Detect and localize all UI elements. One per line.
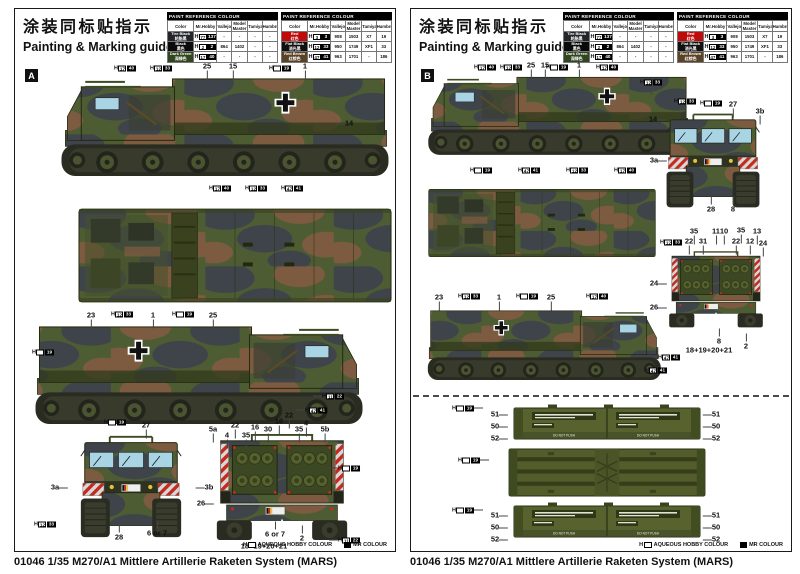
part-callout: 22 (685, 237, 693, 246)
table-row: Tire Black轮胎黑 H77137 - - - - (564, 32, 674, 42)
vehicle-rear-view (665, 249, 767, 329)
paint-chip-callout: H4741 (518, 165, 540, 174)
part-callout: 52 (491, 535, 499, 544)
diagram-canvas-b: B H AQUEOUS HOBBY COLOUR (411, 57, 791, 551)
kit-caption: 01046 1/35 M270/A1 Mittlere Artillerie R… (410, 556, 733, 568)
paint-chip: H1233 (566, 168, 588, 174)
part-callout: 11 (712, 227, 720, 236)
paint-chip: H1233 (704, 44, 726, 50)
part-callout: 4 (225, 431, 229, 440)
paint-chip: H4741 (658, 355, 680, 361)
colour-legend: H AQUEOUS HOBBY COLOUR MR COLOUR (639, 542, 783, 548)
color-swatch: Flat Black消光黑 (282, 42, 308, 52)
part-callout: 1 (151, 311, 155, 320)
paint-chip-callout: H4741 (658, 352, 680, 361)
color-swatch: Flat Black消光黑 (678, 42, 704, 52)
part-callout: 25 (547, 293, 555, 302)
paint-chip: H1740 (474, 65, 496, 71)
part-callout: 30 (264, 425, 272, 434)
part-callout: 51 (491, 410, 499, 419)
table-row: Flat Black消光黑 H1233 950 1749 XF1 33 (282, 42, 392, 52)
paint-chip-callout: H1233 (150, 63, 172, 72)
vehicle-side-view-left (55, 71, 393, 180)
paint-chip-callout: H19 (458, 455, 480, 464)
paint-chip: H19 (700, 101, 722, 107)
paint-chip: H19 (32, 350, 54, 356)
table-row: Black黑色 H22 864 1402 - - (168, 42, 278, 52)
paint-chip: H77137 (194, 34, 216, 40)
paint-chip-callout: H19 (546, 62, 568, 71)
paint-chip: H1233 (150, 66, 172, 72)
table-row: Black黑色 H22 864 1402 - - (564, 42, 674, 52)
title-english: Painting & Marking guide (23, 40, 173, 54)
title-chinese: 涂装同标贴指示 (419, 13, 569, 37)
paint-chip-callout: H1740 (614, 165, 636, 174)
paint-chip: H77137 (590, 34, 612, 40)
paint-chip: H1233 (640, 80, 662, 86)
paint-table-title: PAINT REFERENCE COLOUR (677, 12, 788, 20)
paint-chip-callout: H1122 (322, 391, 344, 400)
part-callout: 8 (717, 337, 721, 346)
paint-chip-callout: H1233 (566, 165, 588, 174)
part-callout: 24 (650, 279, 658, 288)
part-callout: 27 (729, 100, 737, 109)
title-chinese: 涂装同标贴指示 (23, 13, 173, 37)
table-row: Red红色 H33 908 1503 X7 19 (678, 32, 788, 42)
part-callout: 4 (304, 419, 308, 428)
paint-table-1: PAINT REFERENCE COLOUR ColorMr.Hobby Val… (563, 12, 674, 63)
paint-chip-callout: H1233 (674, 96, 696, 105)
vehicle-top-view (77, 203, 393, 308)
part-callout: 26 (197, 499, 205, 508)
paint-chip-callout: H1740 (114, 63, 136, 72)
part-callout: 50 (712, 523, 720, 532)
part-callout: 18+19+20+21 (686, 346, 733, 355)
part-callout: 24 (759, 239, 767, 248)
part-callout: 51 (491, 511, 499, 520)
paint-table-1: PAINT REFERENCE COLOUR ColorMr.Hobby Val… (167, 12, 278, 63)
rocket-pod-side-view (511, 403, 703, 443)
paint-chip: H1740 (209, 186, 231, 192)
paint-chip-callout: H1233 (458, 291, 480, 300)
vehicle-rear-view (211, 431, 353, 542)
paint-table-2: PAINT REFERENCE COLOUR ColorMr.Hobby Val… (281, 12, 392, 63)
paint-chip: H4741 (281, 186, 303, 192)
color-swatch: Tire Black轮胎黑 (168, 32, 194, 42)
table-row: Flat Black消光黑 H1233 950 1749 XF1 33 (678, 42, 788, 52)
paint-chip-callout: H19 (470, 165, 492, 174)
paint-chip-callout: H4741 (281, 183, 303, 192)
paint-chip-callout: H1740 (596, 62, 618, 71)
paint-chip: H19 (452, 406, 474, 412)
paint-chip-callout: H1233 (245, 183, 267, 192)
part-callout: 16 (275, 417, 283, 426)
paint-chip: H19 (546, 65, 568, 71)
part-callout: 12 (746, 237, 754, 246)
paint-chip: H1740 (114, 66, 136, 72)
paint-chip-callout: H19 (338, 463, 360, 472)
instruction-panel-a: 涂装同标贴指示 Painting & Marking guide PAINT R… (14, 8, 396, 552)
part-callout: 16 (251, 423, 259, 432)
paint-chip: H33 (704, 34, 726, 40)
paint-chip: H1233 (308, 44, 330, 50)
part-callout: 13 (753, 227, 761, 236)
part-callout: 14 (345, 119, 353, 128)
part-callout: 3a (51, 483, 59, 492)
paint-table-title: PAINT REFERENCE COLOUR (563, 12, 674, 20)
paint-chip: H19 (338, 466, 360, 472)
part-callout: 25 (209, 311, 217, 320)
paint-chip-callout: H1233 (640, 77, 662, 86)
paint-chip-callout: H1233 (111, 309, 133, 318)
part-callout: 50 (491, 523, 499, 532)
part-callout: 8 (731, 205, 735, 214)
paint-chip: H1233 (500, 65, 522, 71)
paint-chip: H1233 (111, 312, 133, 318)
paint-chip: H1233 (458, 294, 480, 300)
part-callout: 1 (577, 61, 581, 70)
part-callout: 14 (649, 115, 657, 124)
paint-chip: H19 (470, 168, 492, 174)
paint-reference-tables: PAINT REFERENCE COLOUR ColorMr.Hobby Val… (167, 12, 392, 63)
vehicle-front-view (77, 431, 185, 541)
table-row: Tire Black轮胎黑 H77137 - - - - (168, 32, 278, 42)
paint-chip: H4741 (645, 368, 667, 374)
paint-chip: H4741 (305, 408, 327, 414)
aqueous-hobby-colour-icon: H (243, 542, 255, 548)
paint-chip: H1233 (245, 186, 267, 192)
rocket-pod-top-view (507, 447, 707, 498)
color-swatch: Tire Black轮胎黑 (564, 32, 590, 42)
color-swatch: Red红色 (678, 32, 704, 42)
mr-colour-icon (344, 542, 351, 548)
diagram-canvas-a: A H AQUEOUS HOBBY COLOUR MR COLOUR 25151… (15, 57, 395, 551)
paint-chip: H19 (172, 312, 194, 318)
part-callout: 26 (650, 303, 658, 312)
colour-legend: H AQUEOUS HOBBY COLOUR MR COLOUR (243, 542, 387, 548)
aqueous-label: AQUEOUS HOBBY COLOUR (654, 542, 728, 548)
vehicle-side-view-right (425, 305, 665, 383)
paint-chip-callout: H1740 (586, 291, 608, 300)
paint-chip-callout: H19 (452, 403, 474, 412)
paint-chip-callout: H19 (104, 417, 126, 426)
part-callout: 5a (209, 425, 217, 434)
part-callout: 25 (527, 61, 535, 70)
part-callout: 51 (712, 410, 720, 419)
paint-chip-callout: H4741 (305, 405, 327, 414)
paint-chip: H1740 (586, 294, 608, 300)
paint-chip-callout: H19 (172, 309, 194, 318)
paint-chip-callout: H19 (32, 347, 54, 356)
part-callout: 25 (203, 62, 211, 71)
part-callout: 22 (285, 411, 293, 420)
view-marker-a: A (25, 69, 38, 82)
part-callout: 15 (229, 62, 237, 71)
part-callout: 52 (491, 434, 499, 443)
part-callout: 1 (497, 293, 501, 302)
part-callout: 22 (732, 237, 740, 246)
table-row: Red红色 H33 908 1503 X7 19 (282, 32, 392, 42)
paint-chip-callout: H1233 (500, 62, 522, 71)
paint-chip: H22 (590, 44, 612, 50)
part-callout: 28 (115, 533, 123, 542)
paint-chip-callout: H1233 (34, 519, 56, 528)
mr-colour-icon (740, 542, 747, 548)
paint-chip-callout: H1233 (660, 237, 682, 246)
paint-chip-callout: H19 (269, 63, 291, 72)
aqueous-label: AQUEOUS HOBBY COLOUR (258, 542, 332, 548)
page-title: 涂装同标贴指示 Painting & Marking guide (419, 13, 569, 54)
paint-chip: H1740 (596, 65, 618, 71)
paint-chip: H19 (269, 66, 291, 72)
part-callout: 3b (205, 483, 214, 492)
part-callout: 52 (712, 434, 720, 443)
aqueous-hobby-colour-icon: H (639, 542, 651, 548)
paint-chip-callout: H19 (700, 98, 722, 107)
paint-chip: H1233 (674, 99, 696, 105)
color-swatch: Red红色 (282, 32, 308, 42)
vehicle-front-view (663, 109, 763, 211)
part-callout: 35 (737, 226, 745, 235)
paint-table-2: PAINT REFERENCE COLOUR ColorMr.Hobby Val… (677, 12, 788, 63)
part-callout: 35 (242, 431, 250, 440)
paint-reference-tables: PAINT REFERENCE COLOUR ColorMr.Hobby Val… (563, 12, 788, 63)
mr-colour-label: MR COLOUR (749, 542, 783, 548)
color-swatch: Black黑色 (564, 42, 590, 52)
part-callout: 35 (690, 227, 698, 236)
paint-chip: H1740 (614, 168, 636, 174)
part-callout: 23 (87, 311, 95, 320)
part-callout: 50 (491, 422, 499, 431)
part-callout: 1 (303, 62, 307, 71)
part-callout: 28 (707, 205, 715, 214)
part-callout: 23 (435, 293, 443, 302)
paint-chip: H1233 (34, 522, 56, 528)
part-callout: 10 (720, 227, 728, 236)
mr-colour-label: MR COLOUR (353, 542, 387, 548)
color-swatch: Black黑色 (168, 42, 194, 52)
paint-chip: H4741 (518, 168, 540, 174)
part-callout: 27 (142, 421, 150, 430)
title-english: Painting & Marking guide (419, 40, 569, 54)
part-callout: 50 (712, 422, 720, 431)
rocket-pod-side-view (511, 501, 703, 541)
paint-chip-callout: H1740 (209, 183, 231, 192)
instruction-panel-b: 涂装同标贴指示 Painting & Marking guide PAINT R… (410, 8, 792, 552)
paint-chip-callout: H1740 (474, 62, 496, 71)
paint-chip: H19 (104, 420, 126, 426)
part-callout: 31 (699, 237, 707, 246)
paint-chip-callout: H4741 (645, 365, 667, 374)
part-callout: 2 (744, 342, 748, 351)
vehicle-top-view (427, 185, 657, 261)
part-callout: 6 or 7 (265, 530, 285, 539)
paint-chip: H19 (458, 458, 480, 464)
paint-chip: H1233 (660, 240, 682, 246)
page-title: 涂装同标贴指示 Painting & Marking guide (23, 13, 173, 54)
part-callout: 5b (321, 425, 330, 434)
paint-chip: H19 (516, 294, 538, 300)
paint-table-title: PAINT REFERENCE COLOUR (281, 12, 392, 20)
paint-chip: H19 (452, 508, 474, 514)
paint-chip-callout: H19 (452, 505, 474, 514)
paint-chip: H1122 (322, 394, 344, 400)
section-divider (413, 395, 789, 397)
paint-chip: H33 (308, 34, 330, 40)
part-callout: 3b (756, 107, 765, 116)
part-callout: 22 (231, 421, 239, 430)
part-callout: 51 (712, 511, 720, 520)
part-callout: 6 or 7 (147, 529, 167, 538)
kit-caption: 01046 1/35 M270/A1 Mittlere Artillerie R… (14, 556, 337, 568)
paint-table-title: PAINT REFERENCE COLOUR (167, 12, 278, 20)
paint-chip-callout: H19 (516, 291, 538, 300)
paint-chip: H22 (194, 44, 216, 50)
part-callout: 35 (295, 425, 303, 434)
part-callout: 3a (650, 156, 658, 165)
